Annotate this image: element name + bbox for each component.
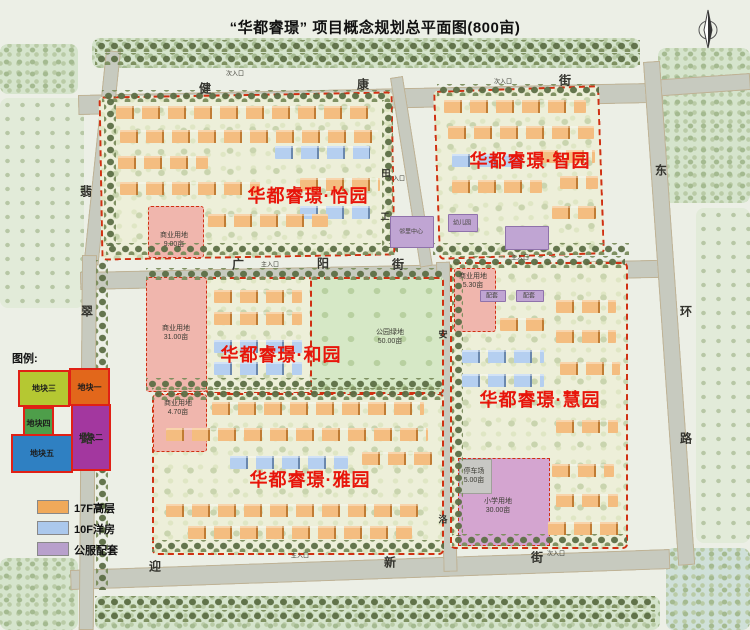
building-row bbox=[166, 428, 428, 441]
street-label-guangyang: 广 bbox=[232, 256, 244, 273]
legend-label-public: 公服配套 bbox=[74, 542, 118, 558]
district-label-yayuan: 华都睿璟·雅园 bbox=[250, 466, 371, 492]
building-row bbox=[452, 180, 542, 193]
parcel-name: 商业用地 bbox=[160, 231, 188, 240]
parcel-area: 5.30亩 bbox=[459, 281, 487, 290]
parcel-label-parking: 停车场 5.00亩 bbox=[464, 467, 485, 485]
district-label-yiyuan: 华都睿璟·怡园 bbox=[248, 182, 369, 208]
building-row bbox=[556, 330, 616, 343]
entrance-label-secondary: 次入口 bbox=[387, 174, 405, 183]
legend-plot-label: 地块五 bbox=[30, 448, 54, 459]
parcel-area: 30.00亩 bbox=[484, 506, 512, 515]
building-row bbox=[188, 526, 412, 539]
tree-hedge bbox=[95, 610, 655, 622]
street-label-donghuan: 路 bbox=[680, 430, 692, 447]
building-row bbox=[120, 182, 260, 195]
public-service-building bbox=[505, 226, 549, 250]
building-row bbox=[552, 206, 596, 219]
building-row bbox=[275, 146, 370, 159]
building-row bbox=[552, 464, 614, 477]
parcel-label-commercial-nw: 商业用地 9.00亩 bbox=[160, 231, 188, 249]
street-label-jiankang: 街 bbox=[559, 72, 571, 89]
tree-hedge bbox=[104, 96, 116, 246]
green-area-top-right bbox=[658, 48, 750, 203]
parcel-label-park: 公园绿地 50.00亩 bbox=[376, 328, 404, 346]
parcel-label-commercial-center: 商业用地 5.30亩 bbox=[459, 272, 487, 290]
legend-label-10f: 10F洋房 bbox=[74, 521, 115, 537]
green-area-right bbox=[696, 208, 750, 543]
facility-label-neighborhood-center: 邻里中心 bbox=[399, 227, 423, 236]
street-label-guangyang: 街 bbox=[392, 256, 404, 273]
entrance-label-main: 主入口 bbox=[511, 253, 529, 262]
building-row bbox=[214, 312, 302, 325]
building-row bbox=[212, 402, 424, 415]
entrance-label-secondary: 次入口 bbox=[494, 77, 512, 86]
street-label-yingxin: 新 bbox=[384, 554, 396, 571]
street-label-tian: 工 bbox=[380, 210, 389, 223]
street-label-feicui: 路 bbox=[81, 430, 93, 447]
site-plan-map: “华都睿璟” 项目概念规划总平面图(800亩) 华都睿璟·怡园 华都睿璟·智园 … bbox=[0, 0, 750, 630]
legend-label-17f: 17F高层 bbox=[74, 500, 115, 516]
facility-label-support: 配套 bbox=[486, 291, 498, 300]
building-row bbox=[362, 452, 432, 465]
parcel-label-school: 小学用地 30.00亩 bbox=[484, 497, 512, 515]
facility-label-kindergarten: 幼儿园 bbox=[453, 218, 471, 227]
tree-hedge bbox=[437, 84, 599, 96]
building-row bbox=[444, 100, 586, 113]
building-row bbox=[548, 522, 620, 535]
district-label-heyuan: 华都睿璟·和园 bbox=[221, 341, 342, 367]
building-row bbox=[208, 214, 328, 227]
parcel-name: 公园绿地 bbox=[376, 328, 404, 337]
green-area-bottom-left bbox=[0, 558, 78, 630]
building-row bbox=[556, 494, 618, 507]
legend-plot-label: 地块三 bbox=[32, 383, 56, 394]
green-area-left bbox=[0, 98, 84, 308]
street-label-donghuan: 东 bbox=[655, 162, 667, 179]
compass-icon bbox=[693, 6, 723, 50]
building-row bbox=[120, 130, 378, 143]
legend-plot-wu: 地块五 bbox=[11, 434, 73, 473]
tree-hedge bbox=[106, 243, 398, 255]
tree-hedge bbox=[452, 268, 463, 536]
street-label-jiankang: 康 bbox=[357, 76, 369, 93]
street-label-feicui: 翠 bbox=[81, 303, 93, 320]
parcel-area: 5.00亩 bbox=[464, 476, 485, 485]
street-label-donghuan: 环 bbox=[680, 303, 692, 320]
parcel-label-commercial-west: 商业用地 31.00亩 bbox=[162, 324, 190, 342]
parcel-area: 4.70亩 bbox=[164, 408, 192, 417]
building-row bbox=[448, 126, 594, 139]
street-label-anluo: 安 bbox=[438, 328, 447, 341]
entrance-label-secondary: 次入口 bbox=[547, 549, 565, 558]
street-label-anluo: 洛 bbox=[438, 513, 447, 526]
street-label-jiankang: 健 bbox=[199, 80, 211, 97]
parcel-name: 停车场 bbox=[464, 467, 485, 476]
parcel-area: 31.00亩 bbox=[162, 333, 190, 342]
street-label-yingxin: 街 bbox=[531, 549, 543, 566]
legend-plot-san: 地块三 bbox=[18, 370, 70, 407]
tree-hedge bbox=[102, 90, 390, 102]
parcel-name: 商业用地 bbox=[459, 272, 487, 281]
building-row bbox=[166, 504, 418, 517]
street-label-feicui: 翡 bbox=[80, 183, 92, 200]
tree-hedge bbox=[450, 256, 625, 268]
building-row bbox=[556, 420, 618, 433]
street-label-yingxin: 迎 bbox=[149, 558, 161, 575]
legend-plot-label: 地块四 bbox=[27, 418, 51, 429]
legend-swatch-public bbox=[37, 542, 69, 556]
parcel-area: 9.00亩 bbox=[160, 240, 188, 249]
street-label-guangyang: 阳 bbox=[317, 255, 329, 272]
building-row bbox=[214, 290, 302, 303]
green-area-top-left bbox=[0, 44, 78, 94]
parcel-label-commercial-sw: 商业用地 4.70亩 bbox=[164, 399, 192, 417]
building-row bbox=[116, 106, 368, 119]
facility-label-support: 配套 bbox=[523, 291, 535, 300]
tree-hedge bbox=[152, 388, 442, 400]
building-row bbox=[560, 362, 620, 375]
page-title: “华都睿璟” 项目概念规划总平面图(800亩) bbox=[230, 17, 521, 38]
building-row bbox=[560, 176, 598, 189]
tree-hedge bbox=[95, 40, 640, 52]
legend-swatch-17f bbox=[37, 500, 69, 514]
parcel-name: 小学用地 bbox=[484, 497, 512, 506]
parcel-area: 50.00亩 bbox=[376, 337, 404, 346]
tree-hedge bbox=[95, 596, 655, 608]
building-row bbox=[556, 300, 616, 313]
parcel-name: 商业用地 bbox=[162, 324, 190, 333]
tree-hedge bbox=[95, 53, 640, 65]
district-label-huiyuan: 华都睿璟·慧园 bbox=[480, 386, 601, 412]
building-row bbox=[462, 350, 544, 363]
legend-plot-yi: 地块一 bbox=[69, 368, 110, 406]
parcel-name: 商业用地 bbox=[164, 399, 192, 408]
entrance-label-main: 主入口 bbox=[261, 260, 279, 269]
entrance-label-secondary: 次入口 bbox=[226, 69, 244, 78]
building-row bbox=[500, 318, 544, 331]
legend-swatch-10f bbox=[37, 521, 69, 535]
legend-title: 图例: bbox=[12, 350, 38, 366]
legend-plot-label: 地块一 bbox=[78, 382, 102, 393]
entrance-label-main: 主入口 bbox=[291, 551, 309, 560]
tree-hedge bbox=[452, 534, 627, 546]
district-label-zhiyuan: 华都睿璟·智园 bbox=[470, 147, 591, 173]
building-row bbox=[118, 156, 208, 169]
